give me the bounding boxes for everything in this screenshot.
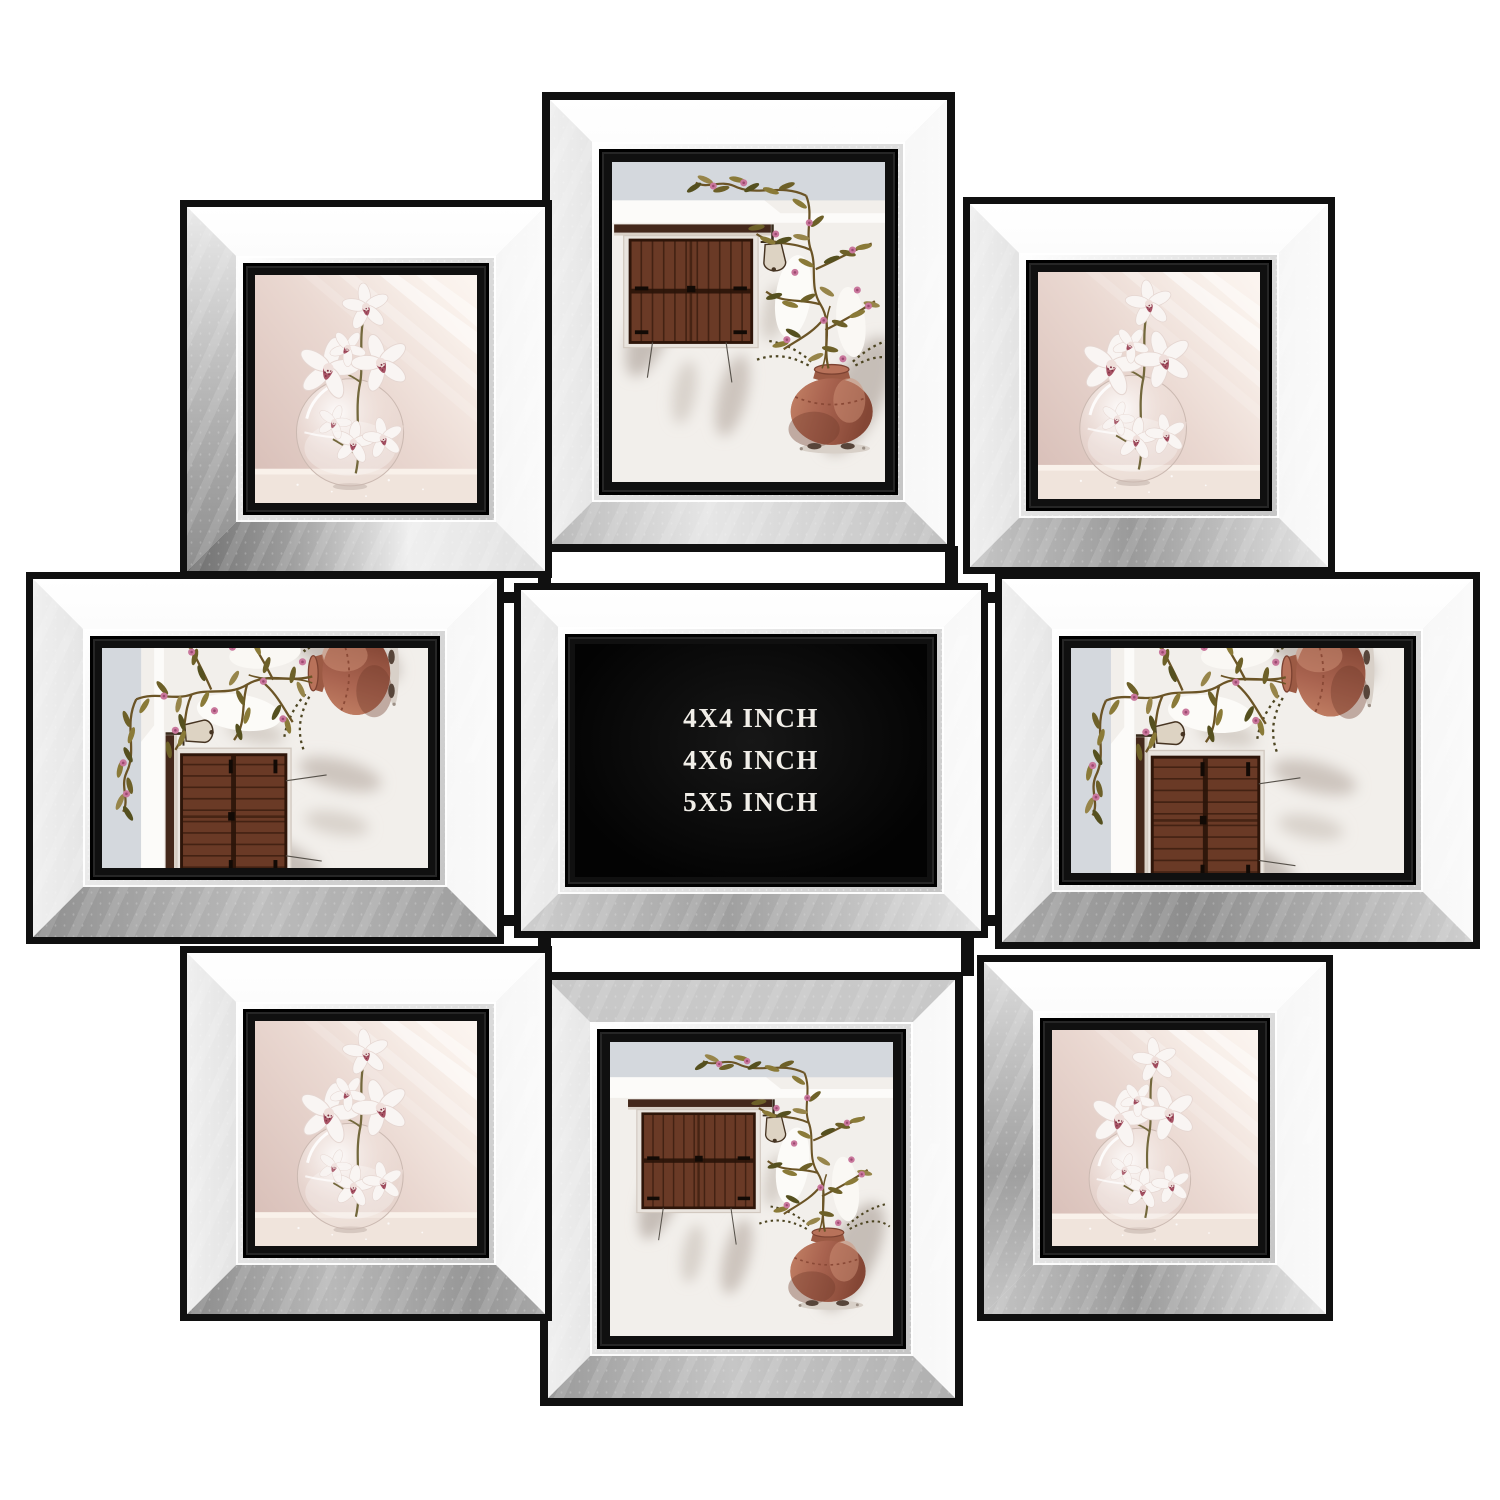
frame-top-center bbox=[542, 92, 955, 552]
frame-middle-center: 4X4 INCH 4X6 INCH 5X5 INCH bbox=[514, 583, 988, 938]
size-text-4x6: 4X6 INCH bbox=[683, 747, 819, 774]
frame-connector bbox=[945, 546, 958, 588]
orchid-photo bbox=[255, 275, 477, 503]
collage-frame-product-photo: 4X4 INCH 4X6 INCH 5X5 INCH bbox=[0, 0, 1500, 1500]
frame-top-right bbox=[963, 197, 1335, 574]
orchid-photo bbox=[1038, 272, 1260, 499]
frame-top-left bbox=[180, 200, 552, 578]
orchid-photo bbox=[255, 1021, 477, 1246]
size-text-4x4: 4X4 INCH bbox=[683, 705, 819, 732]
window-photo-rotated bbox=[102, 648, 428, 868]
frame-bottom-center bbox=[540, 972, 963, 1406]
window-photo bbox=[612, 162, 885, 482]
window-photo-rotated bbox=[1071, 648, 1404, 873]
window-photo bbox=[610, 1042, 893, 1336]
frame-bottom-right bbox=[977, 955, 1333, 1321]
frame-middle-left bbox=[26, 572, 504, 944]
frame-bottom-left bbox=[180, 946, 552, 1321]
frame-middle-right bbox=[995, 572, 1480, 949]
size-text-5x5: 5X5 INCH bbox=[683, 789, 819, 816]
size-plaque: 4X4 INCH 4X6 INCH 5X5 INCH bbox=[575, 644, 927, 877]
orchid-photo bbox=[1052, 1030, 1258, 1246]
